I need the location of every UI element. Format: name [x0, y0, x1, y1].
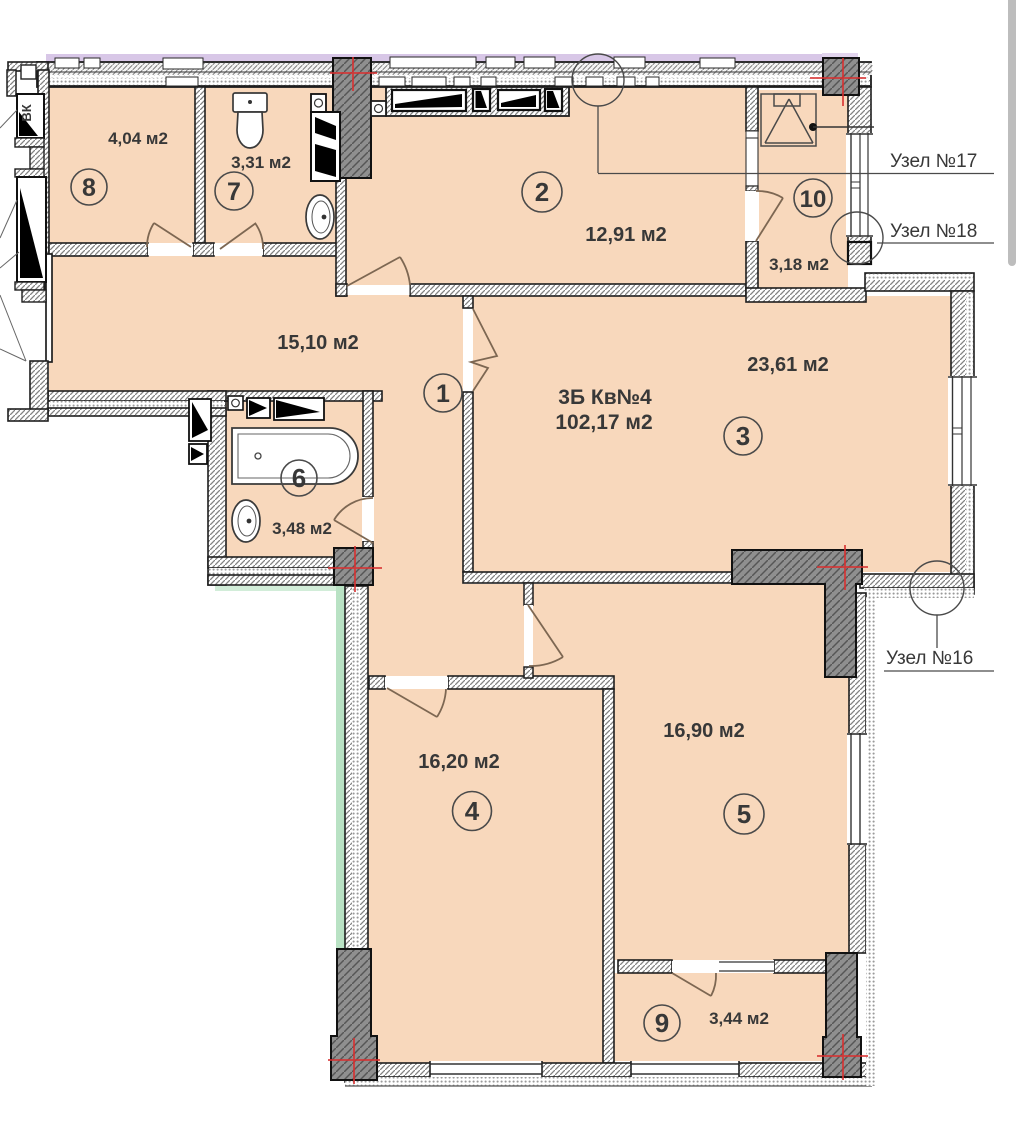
svg-text:1: 1	[436, 380, 450, 408]
svg-text:16,20 м2: 16,20 м2	[418, 751, 500, 773]
svg-text:102,17 м2: 102,17 м2	[555, 411, 652, 434]
svg-text:Узел №18: Узел №18	[890, 221, 977, 242]
svg-text:Узел №16: Узел №16	[886, 648, 973, 669]
svg-text:6: 6	[292, 463, 306, 493]
svg-text:3: 3	[736, 421, 750, 451]
svg-text:3,44 м2: 3,44 м2	[709, 1009, 769, 1028]
svg-text:7: 7	[227, 178, 241, 206]
svg-text:8: 8	[82, 174, 96, 202]
svg-text:16,90 м2: 16,90 м2	[663, 720, 745, 742]
svg-text:3,48 м2: 3,48 м2	[272, 519, 332, 538]
svg-text:23,61 м2: 23,61 м2	[747, 354, 829, 376]
svg-text:15,10 м2: 15,10 м2	[277, 332, 359, 354]
svg-text:9: 9	[655, 1008, 669, 1038]
svg-text:4,04 м2: 4,04 м2	[108, 129, 168, 148]
svg-text:3Б Кв№4: 3Б Кв№4	[558, 386, 652, 409]
svg-text:12,91 м2: 12,91 м2	[585, 224, 667, 246]
svg-text:4: 4	[465, 796, 480, 826]
svg-text:Узел №17: Узел №17	[890, 151, 977, 172]
svg-text:2: 2	[535, 177, 549, 207]
svg-text:ВК: ВК	[19, 104, 34, 121]
svg-text:5: 5	[737, 799, 751, 829]
svg-text:3,31 м2: 3,31 м2	[231, 153, 291, 172]
svg-text:3,18 м2: 3,18 м2	[769, 255, 829, 274]
svg-text:10: 10	[800, 186, 827, 213]
